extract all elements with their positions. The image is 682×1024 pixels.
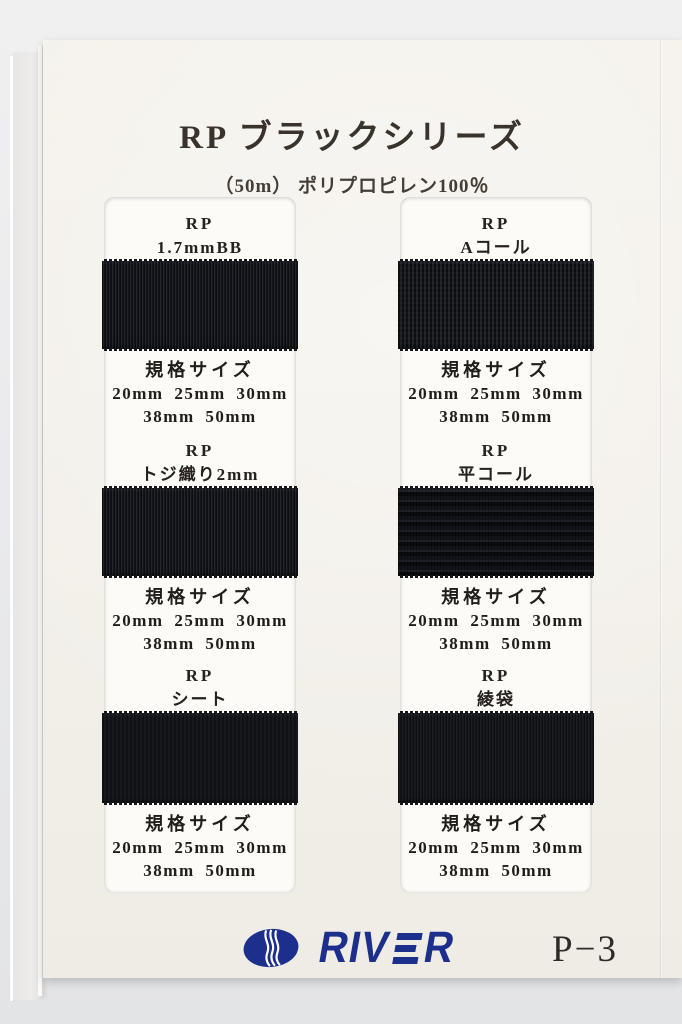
size-values-line1: 20mm 25mm 30mm xyxy=(408,609,583,632)
sample-series-label: RP xyxy=(186,440,215,462)
page-title: RP ブラックシリーズ xyxy=(43,110,661,158)
sample-series-label: RP xyxy=(482,440,511,462)
sample-block: RP シート 規格サイズ 20mm 25mm 30mm 38mm 50mm xyxy=(104,655,296,893)
size-values-line1: 20mm 25mm 30mm xyxy=(112,836,287,859)
sample-variant-label: 1.7mmBB xyxy=(157,235,243,260)
webbing-sample xyxy=(102,488,298,576)
size-values-line2: 38mm 50mm xyxy=(439,405,552,428)
webbing-sample xyxy=(398,488,594,576)
brand-logo: RIVR xyxy=(243,926,456,970)
webbing-sample xyxy=(398,713,594,803)
sample-series-label: RP xyxy=(186,665,215,687)
sample-series-label: RP xyxy=(482,213,511,235)
sample-variant-label: シート xyxy=(172,687,229,712)
page-number: P−3 xyxy=(552,928,618,971)
sample-variant-label: トジ織り2mm xyxy=(141,462,260,487)
sample-block: RP 綾袋 規格サイズ 20mm 25mm 30mm 38mm 50mm xyxy=(400,655,592,893)
sample-card-left: RP 1.7mmBB 規格サイズ 20mm 25mm 30mm 38mm 50m… xyxy=(104,197,296,893)
stylized-e-glyph xyxy=(393,933,423,964)
sample-block: RP トジ織り2mm 規格サイズ 20mm 25mm 30mm 38mm 50m… xyxy=(104,430,296,655)
size-values-line1: 20mm 25mm 30mm xyxy=(112,609,287,632)
brand-wordmark-before: RIV xyxy=(315,926,393,970)
size-values-line2: 38mm 50mm xyxy=(143,405,256,428)
webbing-sample xyxy=(102,261,298,349)
size-heading: 規格サイズ xyxy=(441,358,550,382)
size-values-line1: 20mm 25mm 30mm xyxy=(408,836,583,859)
size-values-line2: 38mm 50mm xyxy=(439,632,552,655)
sample-block: RP 1.7mmBB 規格サイズ 20mm 25mm 30mm 38mm 50m… xyxy=(104,197,296,430)
size-heading: 規格サイズ xyxy=(145,812,254,836)
book-page-edge-stack xyxy=(13,52,38,1000)
size-values-line2: 38mm 50mm xyxy=(143,632,256,655)
webbing-sample xyxy=(102,713,298,803)
sample-block: RP Aコール 規格サイズ 20mm 25mm 30mm 38mm 50mm xyxy=(400,197,592,430)
size-values-line2: 38mm 50mm xyxy=(143,859,256,882)
size-values-line1: 20mm 25mm 30mm xyxy=(408,382,583,405)
size-heading: 規格サイズ xyxy=(441,812,550,836)
sample-block: RP 平コール 規格サイズ 20mm 25mm 30mm 38mm 50mm xyxy=(400,430,592,655)
sample-variant-label: 綾袋 xyxy=(477,687,515,712)
brand-wordmark-after: R xyxy=(421,926,459,970)
sample-series-label: RP xyxy=(482,665,511,687)
size-heading: 規格サイズ xyxy=(441,585,550,609)
catalog-page: RP ブラックシリーズ （50m） ポリプロピレン100％ RP 1.7mmBB… xyxy=(43,40,682,978)
sample-series-label: RP xyxy=(186,213,215,235)
size-values-line2: 38mm 50mm xyxy=(439,859,552,882)
page-subtitle: （50m） ポリプロピレン100％ xyxy=(43,171,661,198)
brand-wordmark: RIVR xyxy=(312,926,460,970)
size-heading: 規格サイズ xyxy=(145,585,254,609)
page-header: RP ブラックシリーズ （50m） ポリプロピレン100％ xyxy=(43,110,661,198)
sample-card-right: RP Aコール 規格サイズ 20mm 25mm 30mm 38mm 50mm R… xyxy=(400,197,592,893)
photo-backdrop: RP ブラックシリーズ （50m） ポリプロピレン100％ RP 1.7mmBB… xyxy=(0,0,682,1024)
size-heading: 規格サイズ xyxy=(145,358,254,382)
sample-variant-label: Aコール xyxy=(460,235,531,260)
size-values-line1: 20mm 25mm 30mm xyxy=(112,382,287,405)
sample-variant-label: 平コール xyxy=(458,462,534,487)
river-logo-icon xyxy=(241,925,301,971)
webbing-sample xyxy=(398,261,594,349)
